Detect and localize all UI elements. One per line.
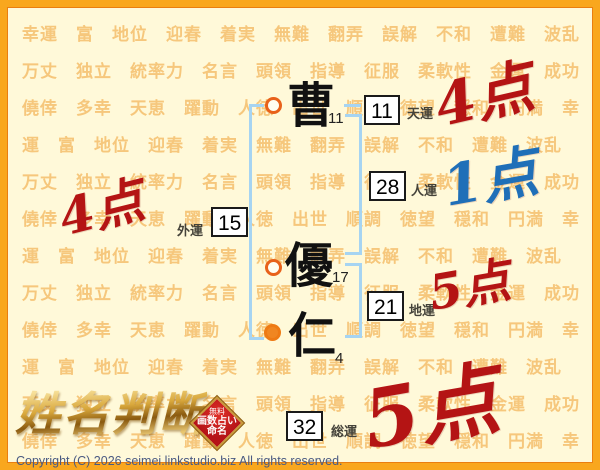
person-run-score: 1点 (439, 145, 542, 214)
badge-line-3: 命名 (207, 427, 227, 438)
char-marker-open (265, 259, 282, 276)
heaven-run-tick (344, 104, 361, 107)
person-run-label: 人運 (411, 180, 437, 199)
person-run-value-box: 28 (369, 171, 406, 201)
given-char-2-stroke-count: 4 (335, 350, 343, 367)
total-run-value-box: 32 (286, 411, 323, 441)
char-marker-open (265, 97, 282, 114)
given-char-2: 仁 (288, 313, 336, 361)
heaven-run-value-box: 11 (364, 95, 400, 125)
free-naming-badge: 無料 画数占い 命名 (191, 397, 243, 449)
outer-run-value-box: 15 (211, 207, 248, 237)
outer-run-bracket (249, 104, 264, 340)
given-char-1: 優 (285, 243, 333, 291)
outer-run-label: 外運 (177, 220, 203, 239)
total-run-label: 総運 (331, 421, 357, 440)
given-char-1-stroke-count: 17 (332, 269, 349, 286)
copyright-text: Copyright (C) 2026 seimei.linkstudio.biz… (16, 454, 343, 468)
earth-run-score: 5点 (426, 258, 514, 317)
result-panel: 幸運 富 地位 迎春 着実 無難 翻弄 誤解 不和 遭難 波乱 万丈 独立 統率… (0, 0, 600, 470)
char-marker-filled (264, 324, 281, 341)
site-logo[interactable]: 姓名判断 (15, 389, 207, 440)
surname-stroke-count: 11 (328, 110, 344, 127)
earth-run-value-box: 21 (367, 291, 404, 321)
person-run-bracket (345, 114, 362, 255)
heaven-run-label: 天運 (407, 103, 433, 122)
total-run-score: 5点 (357, 360, 504, 458)
